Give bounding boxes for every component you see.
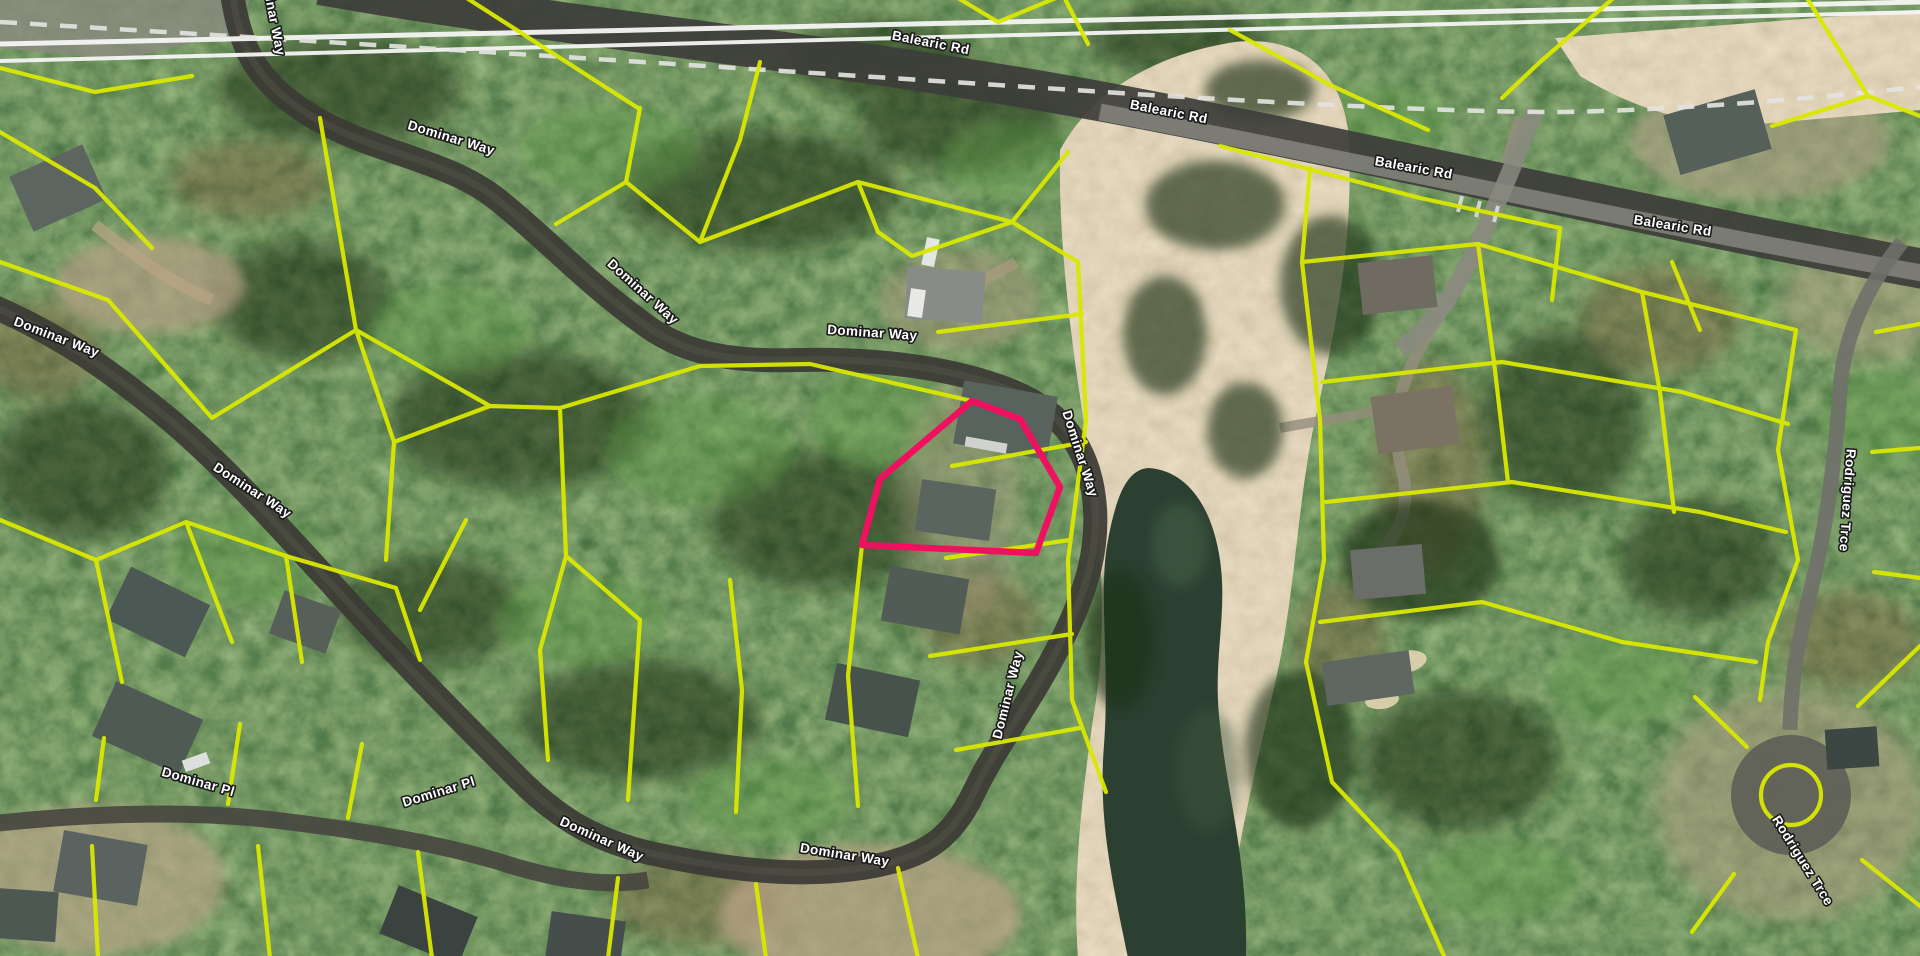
pond-algae xyxy=(1152,503,1208,587)
map-svg[interactable]: Balearic Rd Balearic Rd Balearic Rd Bale… xyxy=(0,0,1920,956)
pond-algae xyxy=(1176,708,1240,832)
satellite-map-canvas[interactable]: Balearic Rd Balearic Rd Balearic Rd Bale… xyxy=(0,0,1920,956)
